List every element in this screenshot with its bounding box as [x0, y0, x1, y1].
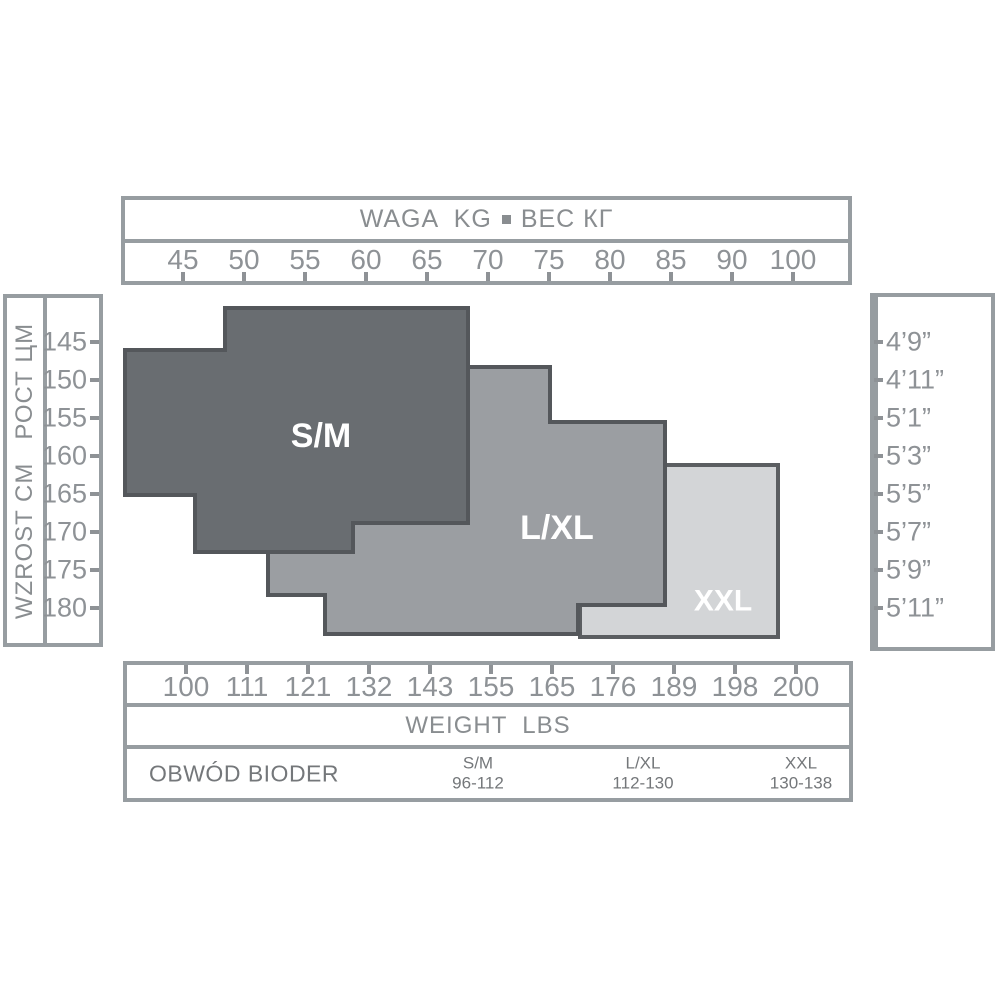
- size-region-label-lxl: L/XL: [520, 509, 594, 547]
- right-axis-value: 5’5”: [886, 479, 931, 510]
- top-axis-value: 70: [472, 244, 503, 276]
- top-axis-scale: 45505560657075808590100: [125, 243, 848, 281]
- right-axis-value: 4’11”: [886, 365, 944, 396]
- size-region-label-xxl: XXL: [694, 585, 752, 618]
- left-axis-value: 150: [42, 365, 87, 396]
- hips-size: S/M: [463, 753, 493, 772]
- hips-entry-lxl: L/XL112-130: [612, 753, 673, 794]
- right-axis-tick: [874, 340, 883, 344]
- bottom-axis-value: 143: [407, 671, 454, 703]
- left-axis-tick: [90, 416, 99, 420]
- bottom-axis-value: 132: [346, 671, 393, 703]
- top-axis-box: WAGA KG ВЕС КГ 45505560657075808590100: [121, 196, 852, 285]
- left-axis-tick: [90, 492, 99, 496]
- top-axis-value: 100: [770, 244, 817, 276]
- top-axis-title: WAGA KG ВЕС КГ: [125, 200, 848, 243]
- right-axis-tick: [874, 606, 883, 610]
- right-axis-value: 5’11”: [886, 593, 944, 624]
- left-axis-value: 155: [42, 403, 87, 434]
- bottom-axis-value: 100: [163, 671, 210, 703]
- left-axis-value: 145: [42, 327, 87, 358]
- bottom-axis-title: WEIGHT LBS: [405, 712, 570, 740]
- bottom-axis-title-row: WEIGHT LBS: [127, 707, 849, 749]
- bottom-axis-value: 189: [651, 671, 698, 703]
- right-axis-tick: [874, 492, 883, 496]
- hips-size: XXL: [785, 753, 817, 772]
- left-axis-scale: 145150155160165170175180: [47, 298, 99, 643]
- top-axis-title-right: ВЕС КГ: [521, 205, 613, 234]
- hips-row: OBWÓD BIODER S/M96-112L/XL112-130XXL130-…: [127, 749, 849, 798]
- hips-size: L/XL: [626, 753, 661, 772]
- hips-range: 112-130: [612, 774, 673, 793]
- left-axis-label: WZROST CM РОСТ ЦМ: [11, 322, 39, 618]
- hips-range: 96-112: [452, 774, 504, 793]
- bottom-table: 100111121132143155165176189198200 WEIGHT…: [123, 661, 853, 802]
- hips-range: 130-138: [770, 774, 832, 793]
- bottom-axis-scale: 100111121132143155165176189198200: [127, 665, 849, 707]
- top-axis-value: 85: [655, 244, 686, 276]
- bottom-axis-value: 176: [590, 671, 637, 703]
- top-axis-value: 55: [289, 244, 320, 276]
- top-axis-value: 50: [228, 244, 259, 276]
- hips-entry-xxl: XXL130-138: [770, 753, 832, 794]
- top-axis-value: 75: [533, 244, 564, 276]
- bottom-axis-value: 198: [712, 671, 759, 703]
- bottom-axis-value: 200: [773, 671, 820, 703]
- top-axis-title-left: WAGA KG: [360, 205, 492, 234]
- right-axis-value: 5’1”: [886, 403, 931, 434]
- right-axis-tick: [874, 530, 883, 534]
- left-axis-tick: [90, 454, 99, 458]
- right-axis-tick: [874, 378, 883, 382]
- left-axis-tick: [90, 606, 99, 610]
- top-axis-value: 45: [167, 244, 198, 276]
- bottom-axis-value: 121: [285, 671, 332, 703]
- bottom-axis-value: 155: [468, 671, 515, 703]
- left-axis-box: WZROST CM РОСТ ЦМ 1451501551601651701751…: [3, 294, 103, 647]
- right-axis-value: 5’3”: [886, 441, 931, 472]
- size-chart-page: XXLL/XLS/M WAGA KG ВЕС КГ 45505560657075…: [0, 0, 1000, 1000]
- left-axis-value: 180: [42, 593, 87, 624]
- bottom-axis-value: 165: [529, 671, 576, 703]
- right-axis-box: 4’9”4’11”5’1”5’3”5’5”5’7”5’9”5’11” HEIGH…: [870, 293, 995, 651]
- right-axis-value: 4’9”: [886, 327, 931, 358]
- left-axis-tick: [90, 568, 99, 572]
- left-axis-tick: [90, 530, 99, 534]
- size-region-label-sm: S/M: [291, 417, 351, 455]
- right-axis-tick: [874, 416, 883, 420]
- left-axis-value: 160: [42, 441, 87, 472]
- right-axis-value: 5’9”: [886, 555, 931, 586]
- top-axis-value: 60: [350, 244, 381, 276]
- top-axis-value: 90: [716, 244, 747, 276]
- left-axis-value: 165: [42, 479, 87, 510]
- size-regions-chart: XXLL/XLS/M: [0, 0, 1000, 1000]
- left-axis-value: 170: [42, 517, 87, 548]
- hips-entry-sm: S/M96-112: [452, 753, 504, 794]
- top-axis-value: 65: [411, 244, 442, 276]
- square-bullet-icon: [502, 215, 511, 224]
- right-axis-tick: [874, 568, 883, 572]
- hips-row-label: OBWÓD BIODER: [149, 760, 339, 787]
- bottom-axis-value: 111: [226, 671, 269, 703]
- right-axis-value: 5’7”: [886, 517, 931, 548]
- right-axis-tick: [874, 454, 883, 458]
- top-axis-value: 80: [594, 244, 625, 276]
- left-axis-tick: [90, 378, 99, 382]
- left-axis-value: 175: [42, 555, 87, 586]
- left-axis-tick: [90, 340, 99, 344]
